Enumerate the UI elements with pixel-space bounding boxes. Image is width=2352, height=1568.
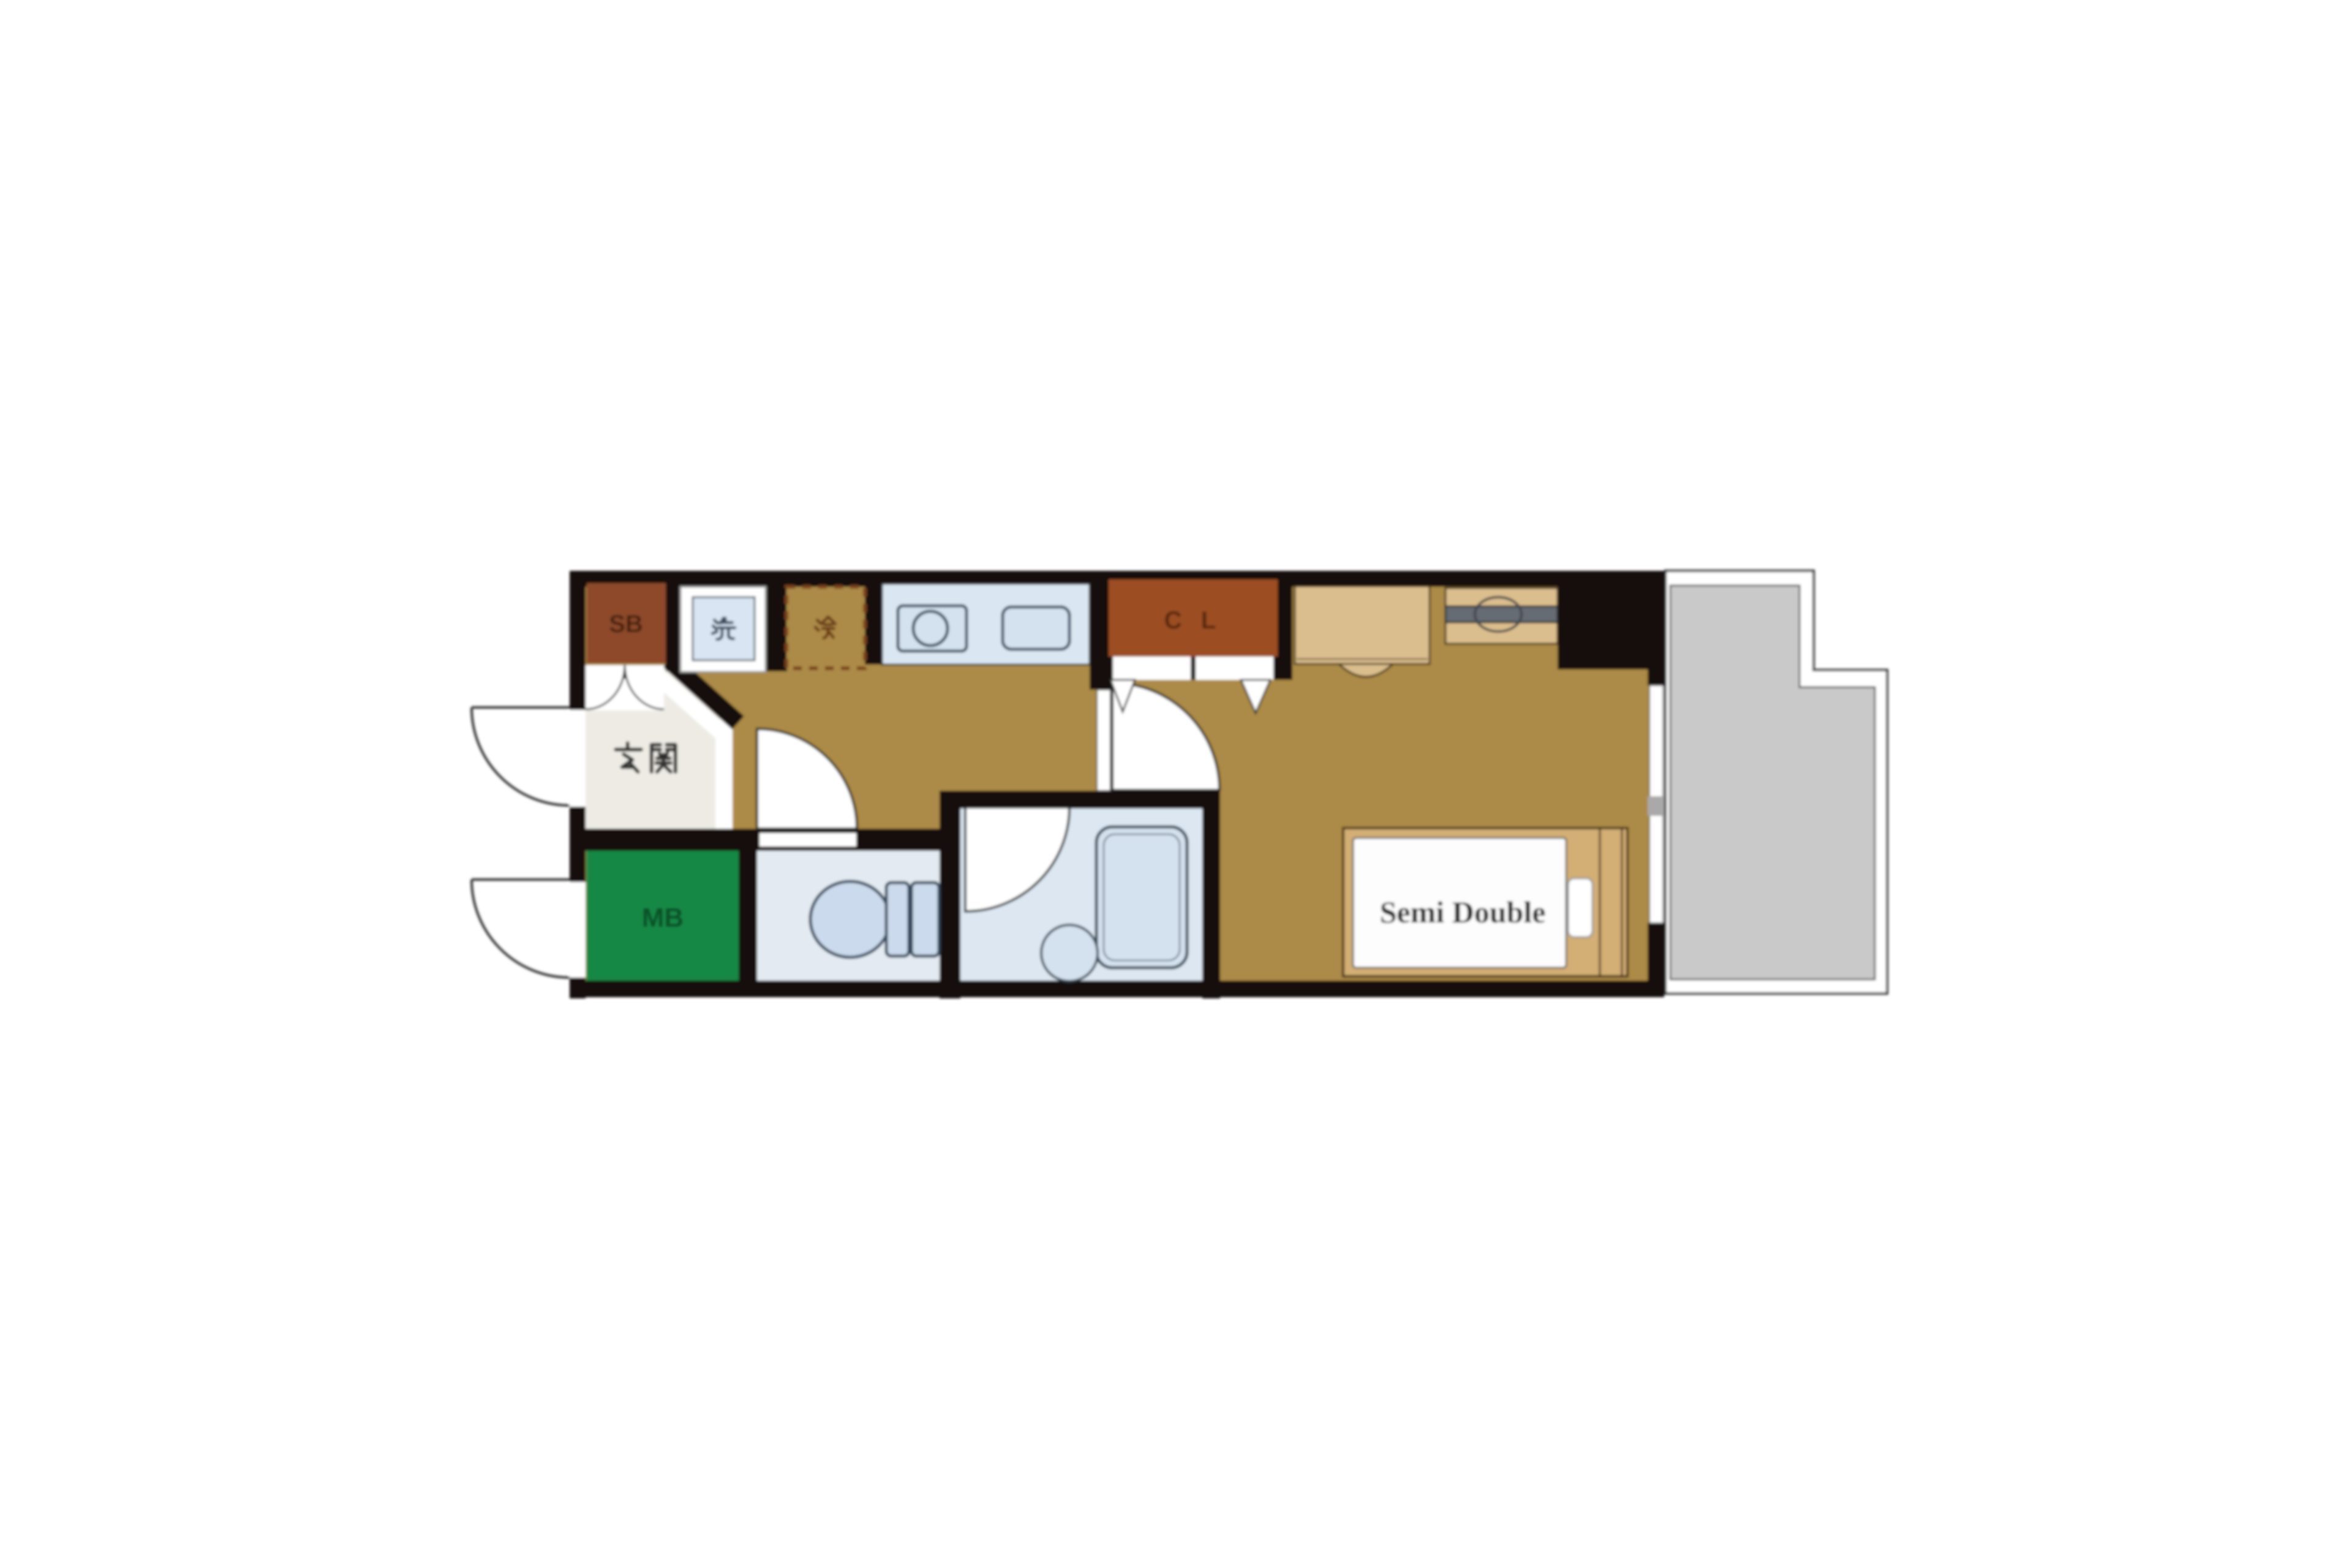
svg-text:Semi Double: Semi Double (1380, 895, 1546, 929)
svg-text:C L: C L (1164, 607, 1222, 634)
svg-text:SB: SB (609, 611, 643, 638)
svg-text:MB: MB (642, 903, 684, 933)
